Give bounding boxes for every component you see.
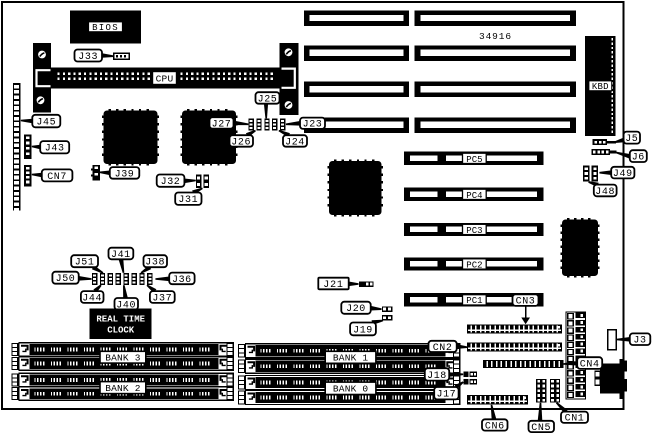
svg-text:J31: J31 (178, 195, 198, 206)
svg-text:CN7: CN7 (47, 172, 67, 183)
svg-text:PC1: PC1 (466, 296, 482, 306)
svg-text:J36: J36 (172, 275, 192, 286)
svg-text:J5: J5 (625, 134, 638, 145)
svg-text:CN4: CN4 (580, 359, 600, 370)
svg-text:J23: J23 (303, 120, 323, 131)
svg-text:PC5: PC5 (466, 155, 482, 165)
svg-text:34916: 34916 (479, 31, 512, 42)
svg-text:J37: J37 (152, 293, 172, 304)
svg-text:J45: J45 (36, 118, 56, 129)
svg-text:J20: J20 (346, 304, 366, 315)
svg-text:J19: J19 (353, 325, 373, 336)
svg-text:J51: J51 (75, 258, 95, 269)
svg-text:J32: J32 (161, 177, 181, 188)
svg-text:J6: J6 (632, 153, 645, 164)
svg-text:J41: J41 (111, 250, 131, 261)
svg-text:BIOS: BIOS (92, 23, 119, 33)
svg-text:J48: J48 (595, 187, 615, 198)
svg-text:J44: J44 (82, 293, 102, 304)
svg-text:J21: J21 (323, 280, 343, 291)
svg-text:J49: J49 (613, 169, 633, 180)
svg-text:PC4: PC4 (466, 191, 482, 201)
svg-text:J27: J27 (212, 119, 232, 130)
svg-text:PC3: PC3 (466, 226, 482, 236)
svg-text:J33: J33 (78, 52, 98, 63)
svg-text:BANK 3: BANK 3 (105, 353, 141, 364)
svg-text:J25: J25 (258, 94, 278, 105)
svg-text:J3: J3 (633, 336, 646, 347)
svg-text:KBD: KBD (592, 82, 609, 92)
svg-text:PC2: PC2 (466, 260, 482, 270)
svg-text:J17: J17 (436, 390, 456, 401)
svg-text:J38: J38 (145, 258, 165, 269)
svg-text:REAL TIME: REAL TIME (96, 315, 145, 325)
svg-text:J24: J24 (285, 137, 305, 148)
svg-text:CLOCK: CLOCK (107, 326, 135, 336)
svg-text:CN6: CN6 (485, 421, 505, 432)
svg-text:CN5: CN5 (531, 423, 551, 434)
svg-text:BANK 1: BANK 1 (333, 353, 369, 364)
svg-text:J39: J39 (115, 169, 135, 180)
svg-text:J50: J50 (56, 274, 76, 285)
svg-text:CN3: CN3 (516, 297, 536, 308)
svg-text:BANK 0: BANK 0 (333, 384, 369, 395)
svg-text:CPU: CPU (156, 73, 174, 84)
svg-text:CN2: CN2 (433, 343, 453, 354)
svg-text:J18: J18 (427, 371, 447, 382)
svg-text:CN1: CN1 (565, 414, 585, 425)
svg-text:J26: J26 (231, 137, 251, 148)
svg-text:J43: J43 (45, 144, 65, 155)
svg-text:BANK 2: BANK 2 (105, 383, 141, 394)
